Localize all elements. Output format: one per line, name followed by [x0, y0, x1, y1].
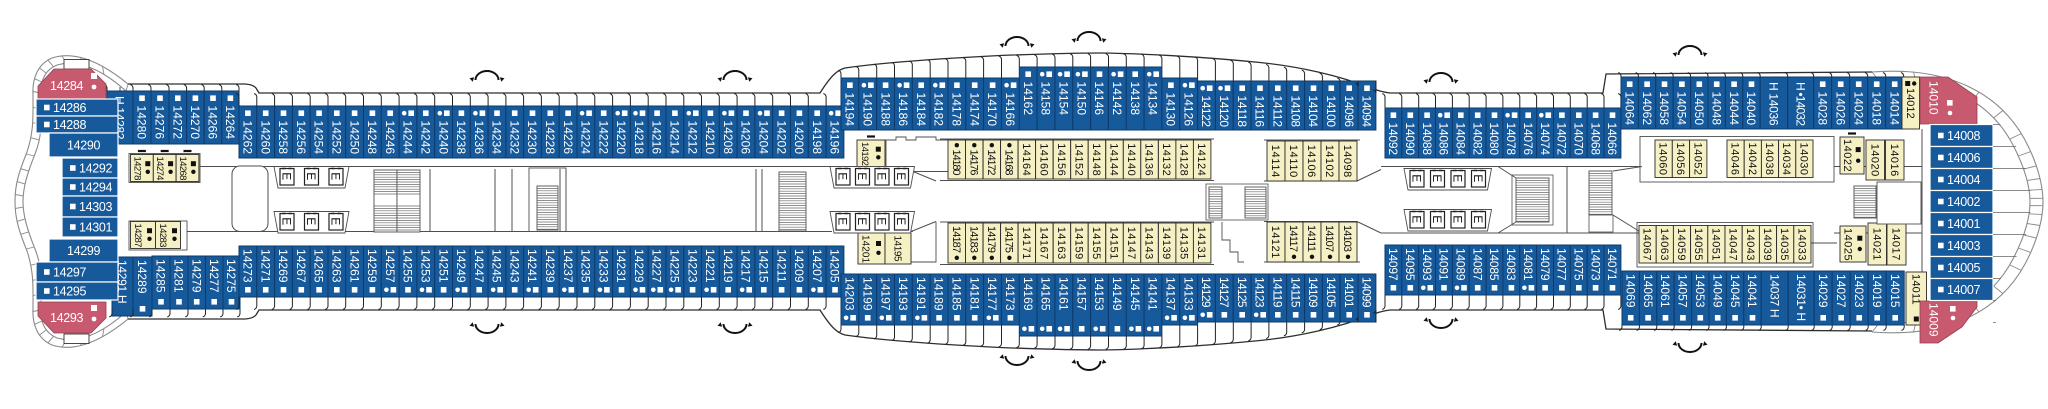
svg-text:14095: 14095 [1403, 248, 1417, 281]
svg-text:14001: 14001 [1947, 217, 1981, 231]
svg-text:14253: 14253 [419, 249, 433, 283]
svg-text:14132: 14132 [1160, 143, 1172, 176]
svg-text:14098: 14098 [1341, 145, 1353, 178]
svg-text:14086: 14086 [1437, 123, 1451, 156]
svg-text:14005: 14005 [1947, 261, 1981, 275]
svg-text:14156: 14156 [1055, 143, 1067, 176]
svg-text:14016: 14016 [1888, 144, 1900, 177]
svg-text:14170: 14170 [985, 93, 999, 127]
svg-text:14189: 14189 [932, 277, 946, 311]
svg-text:14188: 14188 [878, 93, 892, 127]
svg-text:14067: 14067 [1641, 228, 1653, 261]
svg-text:14145: 14145 [1128, 277, 1142, 311]
svg-text:14249: 14249 [454, 249, 468, 283]
svg-text:14174: 14174 [967, 93, 981, 127]
svg-text:14062: 14062 [1640, 92, 1654, 126]
svg-text:14258: 14258 [276, 121, 290, 155]
svg-text:14091: 14091 [1437, 248, 1451, 281]
svg-text:E: E [855, 172, 869, 180]
svg-text:14264: 14264 [223, 106, 237, 140]
svg-text:14048: 14048 [1709, 92, 1723, 126]
svg-text:14138: 14138 [1128, 82, 1142, 116]
svg-text:14289: 14289 [135, 260, 149, 294]
svg-text:14244: 14244 [401, 121, 415, 155]
svg-text:14257: 14257 [383, 249, 397, 283]
svg-text:14135: 14135 [1178, 227, 1190, 260]
svg-text:H 14036: H 14036 [1767, 82, 1781, 126]
svg-text:14083: 14083 [1504, 248, 1518, 281]
svg-text:14175: 14175 [1002, 226, 1014, 253]
svg-text:14171: 14171 [1020, 227, 1032, 260]
svg-text:14078: 14078 [1504, 123, 1518, 156]
svg-text:14283: 14283 [157, 224, 168, 248]
svg-text:14204: 14204 [757, 121, 771, 155]
svg-text:14073: 14073 [1588, 248, 1602, 281]
svg-text:14031• H: 14031• H [1794, 274, 1808, 321]
svg-text:14157: 14157 [1074, 277, 1088, 311]
svg-text:14122: 14122 [1199, 96, 1213, 128]
svg-text:14017: 14017 [1890, 228, 1902, 261]
svg-text:14065: 14065 [1641, 274, 1655, 308]
svg-text:14172: 14172 [985, 150, 997, 176]
svg-text:14281: 14281 [172, 259, 186, 293]
svg-text:14049: 14049 [1710, 274, 1724, 308]
svg-text:14064: 14064 [1622, 92, 1636, 126]
svg-text:14227: 14227 [650, 249, 664, 283]
svg-text:14294: 14294 [79, 180, 113, 194]
svg-text:14181: 14181 [967, 277, 981, 311]
svg-text:E: E [1430, 174, 1444, 182]
svg-text:14133: 14133 [1181, 277, 1195, 311]
svg-text:14275: 14275 [224, 259, 238, 293]
svg-text:14025: 14025 [1841, 228, 1853, 261]
svg-text:14287: 14287 [132, 224, 143, 248]
svg-text:14040: 14040 [1744, 92, 1758, 126]
svg-text:14271: 14271 [258, 249, 272, 283]
svg-text:14205: 14205 [828, 249, 842, 283]
svg-text:14084: 14084 [1454, 123, 1468, 156]
svg-text:E: E [304, 172, 318, 180]
svg-text:14217: 14217 [739, 249, 753, 283]
svg-text:14180: 14180 [950, 150, 962, 176]
svg-text:14121: 14121 [1269, 226, 1281, 259]
svg-text:14202: 14202 [774, 121, 788, 155]
svg-text:14176: 14176 [967, 150, 979, 176]
svg-text:14261: 14261 [347, 249, 361, 283]
svg-text:14272: 14272 [171, 106, 185, 140]
svg-text:14099: 14099 [1360, 277, 1374, 308]
svg-text:14301: 14301 [79, 220, 113, 234]
svg-text:14242: 14242 [419, 121, 433, 155]
svg-text:14060: 14060 [1657, 143, 1669, 176]
svg-text:14053: 14053 [1693, 274, 1707, 308]
svg-text:14002: 14002 [1947, 195, 1981, 209]
svg-text:14214: 14214 [668, 121, 682, 155]
svg-text:E: E [875, 172, 889, 180]
svg-text:14183: 14183 [967, 226, 979, 253]
svg-text:14011: 14011 [1909, 274, 1921, 305]
svg-text:14262: 14262 [241, 121, 255, 155]
svg-text:14299: 14299 [67, 244, 101, 258]
svg-text:14087: 14087 [1470, 248, 1484, 281]
svg-text:14259: 14259 [365, 249, 379, 283]
svg-text:14112: 14112 [1271, 96, 1285, 128]
svg-text:E: E [304, 217, 318, 225]
svg-text:14115: 14115 [1288, 277, 1302, 308]
svg-text:14127: 14127 [1217, 277, 1231, 308]
svg-text:14009: 14009 [1927, 303, 1941, 337]
svg-text:14137: 14137 [1164, 277, 1178, 311]
svg-text:14038: 14038 [1763, 143, 1775, 176]
svg-text:14232: 14232 [507, 121, 521, 155]
svg-text:14004: 14004 [1947, 173, 1981, 187]
svg-text:14256: 14256 [294, 121, 308, 155]
svg-text:14103: 14103 [1341, 225, 1353, 252]
svg-text:14126: 14126 [1181, 93, 1195, 127]
svg-text:14051: 14051 [1709, 228, 1721, 261]
svg-text:14125: 14125 [1235, 277, 1249, 308]
svg-text:14130: 14130 [1164, 93, 1178, 127]
svg-text:14105: 14105 [1324, 277, 1338, 308]
svg-text:E: E [894, 172, 908, 180]
svg-text:14003: 14003 [1947, 239, 1981, 253]
svg-text:14224: 14224 [579, 121, 593, 155]
svg-text:14082: 14082 [1470, 123, 1484, 156]
svg-text:14207: 14207 [810, 249, 824, 283]
svg-text:14250: 14250 [347, 121, 361, 155]
svg-text:14154: 14154 [1057, 82, 1071, 116]
svg-text:14185: 14185 [950, 277, 964, 311]
svg-text:14293: 14293 [50, 311, 84, 325]
svg-text:14160: 14160 [1038, 143, 1050, 176]
svg-text:14088: 14088 [1420, 123, 1434, 156]
svg-text:14226: 14226 [561, 121, 575, 155]
svg-text:14153: 14153 [1092, 277, 1106, 311]
svg-text:14243: 14243 [507, 249, 521, 283]
svg-text:14197: 14197 [878, 277, 892, 311]
svg-text:14187: 14187 [950, 226, 962, 253]
svg-text:14030: 14030 [1797, 143, 1809, 176]
svg-text:14131: 14131 [1195, 227, 1207, 260]
svg-text:14215: 14215 [757, 249, 771, 283]
svg-text:14106: 14106 [1305, 145, 1317, 178]
svg-text:14209: 14209 [792, 249, 806, 283]
svg-text:14010: 14010 [1927, 81, 1941, 115]
svg-text:E: E [329, 217, 343, 225]
svg-text:14148: 14148 [1090, 143, 1102, 176]
svg-text:E: E [329, 172, 343, 180]
svg-text:14034: 14034 [1780, 143, 1792, 176]
svg-text:14162: 14162 [1021, 82, 1035, 116]
svg-text:14225: 14225 [668, 249, 682, 283]
svg-text:14066: 14066 [1605, 123, 1619, 156]
svg-text:14080: 14080 [1487, 123, 1501, 156]
svg-text:14063: 14063 [1658, 228, 1670, 261]
svg-text:14079: 14079 [1538, 248, 1552, 281]
svg-text:14042: 14042 [1746, 143, 1758, 176]
svg-text:14094: 14094 [1360, 96, 1374, 128]
svg-text:14134: 14134 [1146, 82, 1160, 116]
svg-text:14144: 14144 [1108, 143, 1120, 176]
svg-text:14081: 14081 [1521, 248, 1535, 281]
svg-text:14274: 14274 [154, 157, 165, 182]
svg-text:14229: 14229 [632, 249, 646, 283]
svg-text:14104: 14104 [1306, 96, 1320, 128]
svg-text:14198: 14198 [810, 121, 824, 155]
svg-text:14097: 14097 [1386, 248, 1400, 281]
svg-text:14233: 14233 [596, 249, 610, 283]
svg-text:14266: 14266 [206, 106, 220, 140]
svg-text:14203: 14203 [843, 277, 857, 311]
svg-text:14102: 14102 [1323, 145, 1335, 178]
svg-text:14019: 14019 [1870, 274, 1884, 308]
svg-text:14114: 14114 [1269, 145, 1281, 178]
svg-text:14110: 14110 [1287, 145, 1299, 178]
svg-text:14223: 14223 [685, 249, 699, 283]
svg-text:14193: 14193 [896, 277, 910, 311]
svg-text:14231: 14231 [614, 249, 628, 283]
svg-text:H •14032: H •14032 [1793, 82, 1807, 126]
svg-text:14142: 14142 [1110, 82, 1124, 116]
svg-text:14092: 14092 [1386, 123, 1400, 156]
svg-text:E: E [1471, 215, 1485, 223]
svg-text:14230: 14230 [525, 121, 539, 155]
svg-text:E: E [1430, 215, 1444, 223]
svg-text:14267: 14267 [294, 249, 308, 283]
svg-text:14057: 14057 [1676, 274, 1690, 308]
svg-text:14199: 14199 [860, 277, 874, 311]
svg-text:14190: 14190 [860, 93, 874, 127]
svg-text:14212: 14212 [685, 121, 699, 155]
svg-text:14045: 14045 [1728, 274, 1742, 308]
svg-text:14107: 14107 [1323, 225, 1335, 252]
svg-text:14006: 14006 [1947, 151, 1981, 165]
svg-text:E: E [1471, 174, 1485, 182]
svg-text:14228: 14228 [543, 121, 557, 155]
svg-text:14052: 14052 [1691, 143, 1703, 176]
svg-text:14147: 14147 [1125, 227, 1137, 260]
svg-text:14037 H: 14037 H [1767, 274, 1781, 318]
svg-text:14194: 14194 [843, 93, 857, 127]
svg-text:14159: 14159 [1073, 227, 1085, 260]
svg-text:14277: 14277 [207, 259, 221, 293]
svg-text:14219: 14219 [721, 249, 735, 283]
svg-text:E: E [1451, 215, 1465, 223]
svg-text:14186: 14186 [896, 93, 910, 127]
svg-text:14116: 14116 [1253, 96, 1267, 128]
svg-text:14059: 14059 [1675, 228, 1687, 261]
svg-text:14297: 14297 [53, 265, 87, 279]
svg-text:14043: 14043 [1744, 228, 1756, 261]
svg-text:14167: 14167 [1038, 227, 1050, 260]
svg-text:14177: 14177 [985, 277, 999, 311]
svg-text:14152: 14152 [1073, 143, 1085, 176]
svg-text:14211: 14211 [774, 249, 788, 283]
svg-text:14044: 14044 [1727, 92, 1741, 126]
svg-text:14101: 14101 [1342, 277, 1356, 308]
svg-text:14118: 14118 [1235, 96, 1249, 128]
svg-text:E: E [894, 217, 908, 225]
svg-text:14165: 14165 [1039, 277, 1053, 311]
svg-text:14143: 14143 [1143, 227, 1155, 260]
svg-text:14046: 14046 [1729, 143, 1741, 176]
svg-text:14208: 14208 [721, 121, 735, 155]
svg-text:14136: 14136 [1143, 143, 1155, 176]
svg-text:14035: 14035 [1778, 228, 1790, 261]
svg-text:14071: 14071 [1605, 248, 1619, 281]
svg-text:14241: 14241 [525, 249, 539, 283]
svg-text:14254: 14254 [312, 121, 326, 155]
svg-text:14200: 14200 [792, 121, 806, 155]
svg-text:14014: 14014 [1887, 92, 1901, 126]
svg-text:14108: 14108 [1288, 96, 1302, 128]
svg-text:14128: 14128 [1178, 143, 1190, 176]
svg-text:E: E [1451, 174, 1465, 182]
svg-text:14149: 14149 [1110, 277, 1124, 311]
svg-text:14158: 14158 [1039, 82, 1053, 116]
svg-text:14247: 14247 [472, 249, 486, 283]
svg-text:14140: 14140 [1125, 143, 1137, 176]
svg-text:14111: 14111 [1305, 225, 1317, 252]
svg-text:14150: 14150 [1074, 82, 1088, 116]
svg-text:E: E [1410, 174, 1424, 182]
svg-text:14276: 14276 [153, 106, 167, 140]
svg-text:14248: 14248 [365, 121, 379, 155]
svg-text:14192: 14192 [859, 142, 870, 166]
svg-text:14269: 14269 [276, 249, 290, 283]
svg-text:14220: 14220 [614, 121, 628, 155]
svg-text:14246: 14246 [383, 121, 397, 155]
svg-text:14020: 14020 [1868, 144, 1880, 177]
svg-text:14021: 14021 [1870, 228, 1882, 261]
svg-text:14168: 14168 [1002, 150, 1014, 176]
svg-text:14268: 14268 [177, 157, 188, 181]
svg-text:14218: 14218 [632, 121, 646, 155]
svg-text:14195: 14195 [891, 236, 902, 262]
svg-text:14278: 14278 [131, 157, 142, 181]
svg-text:14041: 14041 [1745, 274, 1759, 308]
svg-text:14096: 14096 [1342, 96, 1356, 128]
svg-text:14119: 14119 [1271, 277, 1285, 308]
svg-text:E: E [280, 172, 294, 180]
svg-text:14295: 14295 [53, 284, 87, 298]
svg-text:14292: 14292 [79, 161, 113, 175]
svg-text:14076: 14076 [1521, 123, 1535, 156]
svg-text:14164: 14164 [1020, 143, 1032, 176]
svg-text:E: E [1410, 215, 1424, 223]
svg-text:14012: 14012 [1904, 88, 1916, 119]
svg-text:14054: 14054 [1675, 92, 1689, 126]
svg-text:14018: 14018 [1869, 92, 1883, 126]
svg-text:14201: 14201 [860, 235, 871, 263]
svg-text:14263: 14263 [330, 249, 344, 283]
svg-text:14260: 14260 [258, 121, 272, 155]
svg-text:14234: 14234 [490, 121, 504, 155]
svg-text:E: E [836, 172, 850, 180]
svg-text:14279: 14279 [189, 259, 203, 293]
svg-text:14027: 14027 [1834, 274, 1848, 308]
svg-text:14029: 14029 [1816, 274, 1830, 308]
svg-text:14270: 14270 [188, 106, 202, 140]
svg-text:14085: 14085 [1487, 248, 1501, 281]
svg-text:14024: 14024 [1851, 92, 1865, 126]
svg-text:E: E [855, 217, 869, 225]
svg-text:14155: 14155 [1090, 227, 1102, 260]
svg-text:14286: 14286 [53, 101, 87, 115]
svg-text:14028: 14028 [1815, 92, 1829, 126]
svg-text:14240: 14240 [436, 121, 450, 155]
svg-text:14069: 14069 [1623, 274, 1637, 308]
svg-text:14058: 14058 [1657, 92, 1671, 126]
svg-text:14129: 14129 [1199, 277, 1213, 308]
svg-text:14288: 14288 [53, 118, 87, 132]
svg-text:14284: 14284 [50, 79, 84, 93]
svg-text:14179: 14179 [985, 226, 997, 253]
svg-text:14265: 14265 [312, 249, 326, 283]
svg-text:14285: 14285 [154, 259, 168, 293]
svg-text:14008: 14008 [1947, 129, 1981, 143]
svg-text:14141: 14141 [1146, 277, 1160, 311]
svg-text:14068: 14068 [1588, 123, 1602, 156]
svg-text:14047: 14047 [1727, 228, 1739, 261]
svg-text:14015: 14015 [1888, 274, 1902, 308]
svg-text:14191: 14191 [914, 277, 928, 311]
svg-text:14117: 14117 [1287, 225, 1299, 252]
svg-text:14169: 14169 [1021, 277, 1035, 311]
svg-text:14235: 14235 [579, 249, 593, 283]
svg-text:14238: 14238 [454, 121, 468, 155]
svg-text:14245: 14245 [490, 249, 504, 283]
svg-text:14056: 14056 [1674, 143, 1686, 176]
svg-text:14075: 14075 [1572, 248, 1586, 281]
svg-text:14023: 14023 [1852, 274, 1866, 308]
svg-text:14161: 14161 [1057, 277, 1071, 311]
svg-text:14093: 14093 [1420, 248, 1434, 281]
svg-text:14222: 14222 [596, 121, 610, 155]
svg-text:14077: 14077 [1555, 248, 1569, 281]
svg-text:14206: 14206 [739, 121, 753, 155]
svg-text:14236: 14236 [472, 121, 486, 155]
svg-text:14072: 14072 [1555, 123, 1569, 156]
svg-text:14163: 14163 [1055, 227, 1067, 260]
svg-text:14074: 14074 [1538, 123, 1552, 156]
svg-text:14146: 14146 [1092, 82, 1106, 116]
svg-text:14109: 14109 [1306, 277, 1320, 308]
svg-text:14237: 14237 [561, 249, 575, 283]
svg-text:14255: 14255 [401, 249, 415, 283]
svg-text:14100: 14100 [1324, 96, 1338, 128]
svg-text:14178: 14178 [950, 93, 964, 127]
svg-text:14055: 14055 [1692, 228, 1704, 261]
svg-text:14280: 14280 [135, 106, 149, 140]
svg-text:14124: 14124 [1195, 143, 1207, 176]
svg-text:14252: 14252 [330, 121, 344, 155]
svg-text:14090: 14090 [1403, 123, 1417, 156]
svg-text:E: E [875, 217, 889, 225]
svg-text:14239: 14239 [543, 249, 557, 283]
svg-text:14033: 14033 [1795, 228, 1807, 261]
svg-text:14061: 14061 [1658, 274, 1672, 308]
svg-text:14026: 14026 [1833, 92, 1847, 126]
svg-text:14123: 14123 [1253, 277, 1267, 308]
svg-text:14039: 14039 [1761, 228, 1773, 261]
svg-text:14184: 14184 [914, 93, 928, 127]
svg-text:14290: 14290 [67, 138, 101, 152]
svg-text:E: E [836, 217, 850, 225]
svg-text:14210: 14210 [703, 121, 717, 155]
svg-text:14303: 14303 [79, 200, 113, 214]
svg-text:14007: 14007 [1947, 283, 1981, 297]
